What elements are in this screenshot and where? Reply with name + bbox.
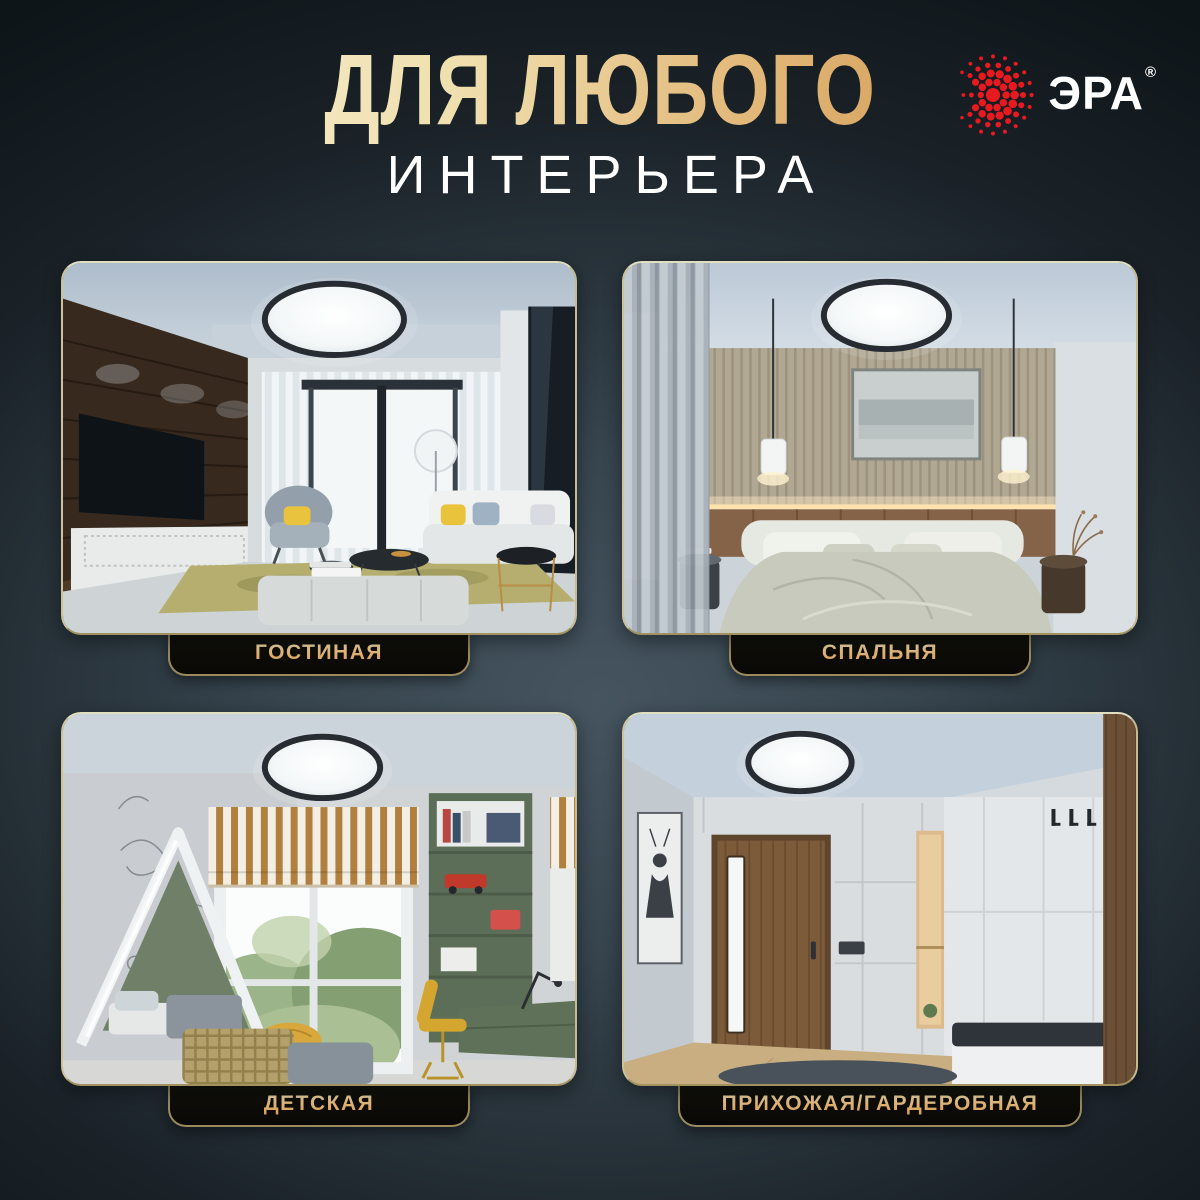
room-label-plate: ДЕТСКАЯ (168, 1083, 470, 1127)
roman-blind (208, 807, 419, 886)
led-strip (709, 496, 1055, 509)
wood-panel (1103, 714, 1136, 1084)
room-label: ПРИХОЖАЯ/ГАРДЕРОБНАЯ (722, 1092, 1039, 1115)
page-title: ДЛЯ ЛЮБОГО (132, 36, 1068, 144)
ceiling-light (251, 278, 418, 367)
bench (952, 1023, 1111, 1084)
bed (719, 520, 1051, 633)
side-window (550, 797, 575, 981)
bedroom-photo (622, 261, 1138, 635)
room-label: ГОСТИНАЯ (255, 641, 383, 664)
room-card-living-room: ГОСТИНАЯ (61, 261, 577, 676)
room-label-plate: ГОСТИНАЯ (168, 632, 470, 676)
wall-art (853, 370, 980, 459)
registered-mark: ® (1145, 64, 1157, 81)
hallway-photo (622, 712, 1138, 1086)
brand-logo: ЭРА® (946, 48, 1156, 142)
ceiling-light (811, 277, 962, 360)
room-card-bedroom: СПАЛЬНЯ (622, 261, 1138, 676)
room-card-kids-room: ДЕТСКАЯ (61, 712, 577, 1127)
living-room-photo (61, 261, 577, 635)
entrance-door (711, 835, 830, 1061)
wall-art (638, 813, 682, 963)
room-card-hallway: ПРИХОЖАЯ/ГАРДЕРОБНАЯ (622, 712, 1138, 1127)
room-label-plate: СПАЛЬНЯ (729, 632, 1031, 676)
era-sunburst-icon (946, 48, 1040, 142)
kids-room-photo (61, 712, 577, 1086)
curtains (624, 263, 709, 633)
page-subtitle: ИНТЕРЬЕРА (0, 146, 1200, 204)
ceiling-light (736, 730, 863, 801)
lighted-niche (916, 831, 944, 1029)
room-label: СПАЛЬНЯ (822, 641, 938, 664)
brand-name: ЭРА® (1048, 66, 1156, 120)
room-label-plate: ПРИХОЖАЯ/ГАРДЕРОБНАЯ (678, 1083, 1083, 1127)
room-label: ДЕТСКАЯ (264, 1092, 375, 1115)
ceiling-light (253, 733, 392, 808)
door-panel-switch (839, 942, 865, 955)
